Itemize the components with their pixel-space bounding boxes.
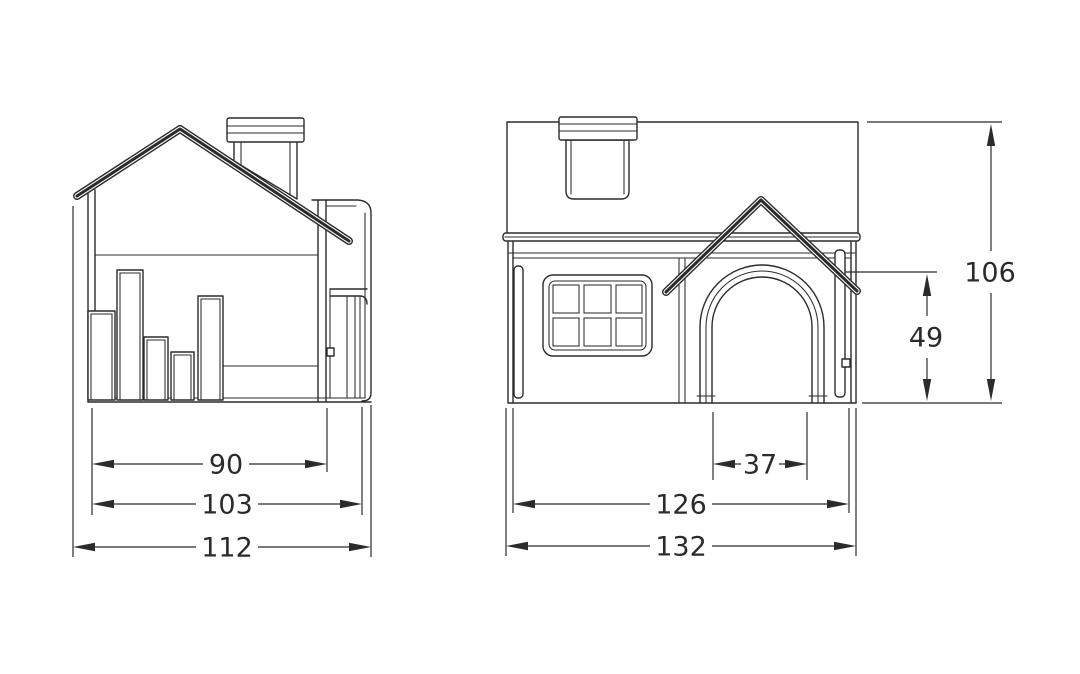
dim-side-inner-width: 90 (92, 449, 327, 480)
side-roof (77, 129, 349, 241)
side-roof-band-core (77, 129, 349, 241)
dim-label-side-overall-width: 112 (201, 532, 253, 563)
front-window (543, 275, 652, 356)
front-wall-clip (842, 359, 850, 367)
technical-drawing: 90 103 112 (0, 0, 1080, 674)
dim-side-body-width: 103 (92, 489, 362, 520)
side-porch-clip (327, 348, 334, 356)
gable-band-gap (666, 200, 857, 292)
dim-front-body-width: 126 (513, 489, 849, 520)
dim-overall-height: 106 (964, 124, 1016, 401)
dim-side-overall-width: 112 (73, 532, 371, 563)
arrowhead-left (92, 460, 114, 468)
arrowhead-down (987, 379, 995, 401)
side-roof-band-outline (77, 129, 349, 241)
arrowhead-left (513, 500, 535, 508)
arrowhead-right (785, 460, 807, 468)
dim-label-side-body-width: 103 (201, 489, 253, 520)
slat-1 (88, 311, 115, 400)
arrowhead-right (305, 460, 327, 468)
arrowhead-right (827, 500, 849, 508)
arrowhead-right (834, 542, 856, 550)
slat-2 (117, 270, 143, 400)
dim-door-height: 49 (909, 274, 943, 401)
arrowhead-left (506, 542, 528, 550)
arrowhead-up (987, 124, 995, 146)
front-view: 37 126 132 106 (503, 117, 1016, 562)
slat-5 (198, 296, 223, 400)
front-wall-seams (508, 253, 856, 258)
side-porch-outline (312, 200, 371, 401)
front-roof (503, 122, 860, 241)
side-porch-eave (330, 289, 367, 304)
dim-label-door-width: 37 (743, 449, 777, 480)
gable-band-core (666, 200, 857, 292)
front-left-corner-trim (514, 266, 523, 398)
door-arch-middle (706, 271, 818, 403)
dim-label-overall-height: 106 (964, 257, 1016, 288)
door-arch-inner (712, 277, 812, 403)
front-chimney (559, 117, 637, 199)
dim-label-door-height: 49 (909, 322, 943, 353)
arrowhead-left (73, 543, 95, 551)
side-view: 90 103 112 (73, 118, 371, 563)
side-porch-panel-lines (330, 289, 360, 398)
arrowhead-right (340, 500, 362, 508)
dim-label-side-inner-width: 90 (209, 449, 243, 480)
dim-front-overall-width: 132 (506, 531, 856, 562)
slat-3 (144, 337, 168, 400)
front-wall-right-edge (851, 242, 856, 403)
dim-label-front-body-width: 126 (655, 489, 707, 520)
dim-label-front-overall-width: 132 (655, 531, 707, 562)
dim-door-width: 37 (713, 449, 807, 480)
side-chimney-cap (227, 118, 304, 142)
front-wall-left-edge (508, 242, 513, 403)
door-arch-outer (700, 265, 824, 403)
arrowhead-down (923, 379, 931, 401)
front-door-arch (697, 265, 827, 403)
arrowhead-right (349, 543, 371, 551)
gable-band-outline (666, 200, 857, 292)
arrowhead-left (92, 500, 114, 508)
front-chimney-body (566, 140, 629, 199)
window-outer-frame (543, 275, 652, 356)
front-chimney-cap (559, 117, 637, 140)
side-roof-band-gap (77, 129, 349, 241)
arrowhead-up (923, 274, 931, 296)
porch-gable-roof (666, 200, 857, 292)
arrowhead-left (713, 460, 735, 468)
side-wall-right-edge (318, 200, 326, 402)
fence-slats (88, 270, 223, 400)
drawing-canvas: 90 103 112 (0, 0, 1080, 674)
side-porch (312, 200, 371, 401)
